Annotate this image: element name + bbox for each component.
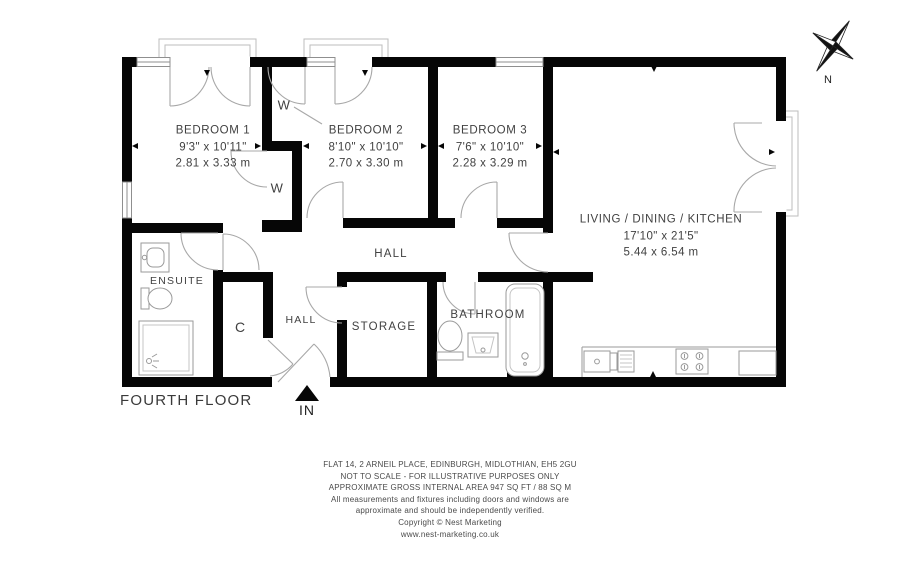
- label-bedroom1: BEDROOM 1 9'3" x 10'11" 2.81 x 3.33 m: [176, 122, 251, 172]
- room-name: BEDROOM 2: [328, 122, 403, 139]
- floorplan-page: BEDROOM 1 9'3" x 10'11" 2.81 x 3.33 m BE…: [0, 0, 900, 563]
- door-bedroom2: [307, 182, 343, 218]
- room-dims-metric: 2.81 x 3.33 m: [176, 155, 251, 172]
- door-ensuite: [181, 233, 218, 270]
- door-living: [509, 233, 548, 272]
- balcony-bedroom2: [304, 39, 388, 58]
- room-dims-metric: 5.44 x 6.54 m: [580, 244, 743, 261]
- room-dims-imperial: 8'10" x 10'10": [328, 139, 403, 156]
- door-bedroom1: [223, 234, 259, 270]
- room-name: BEDROOM 3: [453, 122, 528, 139]
- footer-copyright: Copyright © Nest Marketing: [0, 517, 900, 529]
- label-hall2: HALL: [285, 314, 316, 326]
- window-bedroom3-top: [496, 58, 543, 67]
- room-name: LIVING / DINING / KITCHEN: [580, 211, 743, 228]
- bathroom-toilet: [437, 321, 463, 360]
- room-dims-metric: 2.28 x 3.29 m: [453, 155, 528, 172]
- door-living-balcony-top: [734, 123, 776, 166]
- bathtub: [506, 284, 544, 376]
- wardrobe-callout-line: [294, 107, 322, 124]
- room-dims-imperial: 9'3" x 10'11": [176, 139, 251, 156]
- footer-disclaimer-line2: approximate and should be independently …: [0, 505, 900, 517]
- ensuite-toilet: [141, 288, 172, 309]
- door-entrance: [278, 344, 330, 382]
- kitchen-sink: [584, 351, 634, 372]
- door-living-balcony-bottom: [734, 168, 776, 212]
- compass-north-label: N: [824, 74, 832, 86]
- door-bedroom1-balcony-right: [211, 67, 250, 106]
- compass-icon: [797, 8, 870, 84]
- balcony-bedroom1: [159, 39, 256, 58]
- ensuite-sink: [141, 243, 169, 272]
- footer-website: www.nest-marketing.co.uk: [0, 529, 900, 541]
- room-dims-imperial: 7'6" x 10'10": [453, 139, 528, 156]
- label-living: LIVING / DINING / KITCHEN 17'10" x 21'5"…: [580, 211, 743, 261]
- label-bedroom3: BEDROOM 3 7'6" x 10'10" 2.28 x 3.29 m: [453, 122, 528, 172]
- room-name: BEDROOM 1: [176, 122, 251, 139]
- door-bedroom1-balcony-left: [170, 67, 209, 106]
- kitchen-unit: [739, 351, 776, 375]
- label-wardrobe-bottom: W: [271, 181, 284, 196]
- entrance-label: IN: [299, 402, 315, 418]
- footer-disclaimer: FLAT 14, 2 ARNEIL PLACE, EDINBURGH, MIDL…: [0, 459, 900, 540]
- window-bedroom2-top: [307, 58, 335, 67]
- footer-address: FLAT 14, 2 ARNEIL PLACE, EDINBURGH, MIDL…: [0, 459, 900, 471]
- room-dims-metric: 2.70 x 3.30 m: [328, 155, 403, 172]
- bathroom-sink: [468, 333, 498, 357]
- door-bedroom3: [461, 182, 497, 218]
- room-dims-imperial: 17'10" x 21'5": [580, 228, 743, 245]
- label-wardrobe-top: W: [278, 98, 291, 113]
- label-bathroom: BATHROOM: [450, 309, 525, 321]
- footer-area: APPROXIMATE GROSS INTERNAL AREA 947 SQ F…: [0, 482, 900, 494]
- floor-title: FOURTH FLOOR: [120, 392, 252, 409]
- label-bedroom2: BEDROOM 2 8'10" x 10'10" 2.70 x 3.30 m: [328, 122, 403, 172]
- hob-icon: [676, 349, 708, 374]
- label-cupboard: C: [235, 319, 245, 335]
- label-storage: STORAGE: [352, 321, 416, 333]
- label-ensuite: ENSUITE: [150, 275, 204, 287]
- label-hall: HALL: [374, 248, 408, 260]
- footer-disclaimer-line1: All measurements and fixtures including …: [0, 494, 900, 506]
- footer-not-to-scale: NOT TO SCALE - FOR ILLUSTRATIVE PURPOSES…: [0, 471, 900, 483]
- window-bedroom1-top: [137, 58, 170, 67]
- shower: [139, 321, 193, 375]
- window-bedroom1-left: [123, 182, 132, 218]
